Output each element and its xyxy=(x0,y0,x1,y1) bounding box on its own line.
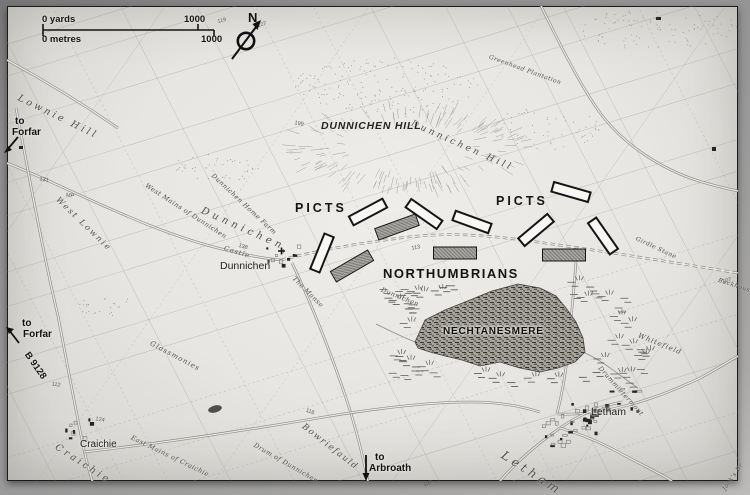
unit-northumbrians xyxy=(542,249,586,262)
spot-height: 107 xyxy=(423,480,434,489)
direction-to-forfar-upper: to Forfar xyxy=(6,116,41,138)
map-background-drawing xyxy=(7,6,738,481)
direction-place: Arbroath xyxy=(369,463,411,474)
unit-northumbrians xyxy=(433,247,477,260)
label-dunnichen-hill: DUNNICHEN HILL xyxy=(321,120,421,132)
scale-bar-rule xyxy=(42,23,232,37)
direction-place: Forfar xyxy=(23,329,52,340)
arrow-northwest-icon xyxy=(4,325,24,347)
direction-prefix: to xyxy=(22,318,52,329)
spot-height: MP xyxy=(65,192,74,199)
scale-bar: 0 yards 1000 0 metres 1000 xyxy=(40,12,240,52)
arrow-south-icon xyxy=(361,453,373,483)
label-picts-east: PICTS xyxy=(496,194,548,208)
battle-map-photo: 0 yards 1000 0 metres 1000 N to Forfar t… xyxy=(0,0,750,495)
label-northumbrians: NORTHUMBRIANS xyxy=(383,266,519,281)
north-label: N xyxy=(248,10,257,25)
label-picts-west: PICTS xyxy=(295,201,347,215)
label-village-letham: Letham xyxy=(591,406,626,418)
direction-prefix: to xyxy=(375,452,411,463)
label-village-craichie: Craichie xyxy=(80,439,117,450)
arrow-southwest-icon xyxy=(2,134,22,156)
north-arrow: N xyxy=(226,8,272,66)
direction-prefix: to xyxy=(15,116,41,127)
spot-height: 112 xyxy=(51,381,61,388)
direction-to-forfar-lower: to Forfar xyxy=(14,318,52,340)
direction-to-arbroath: to Arbroath xyxy=(362,452,411,474)
label-nechtanesmere: NECHTANESMERE xyxy=(443,326,544,337)
label-village-dunnichen: Dunnichen xyxy=(220,260,270,272)
